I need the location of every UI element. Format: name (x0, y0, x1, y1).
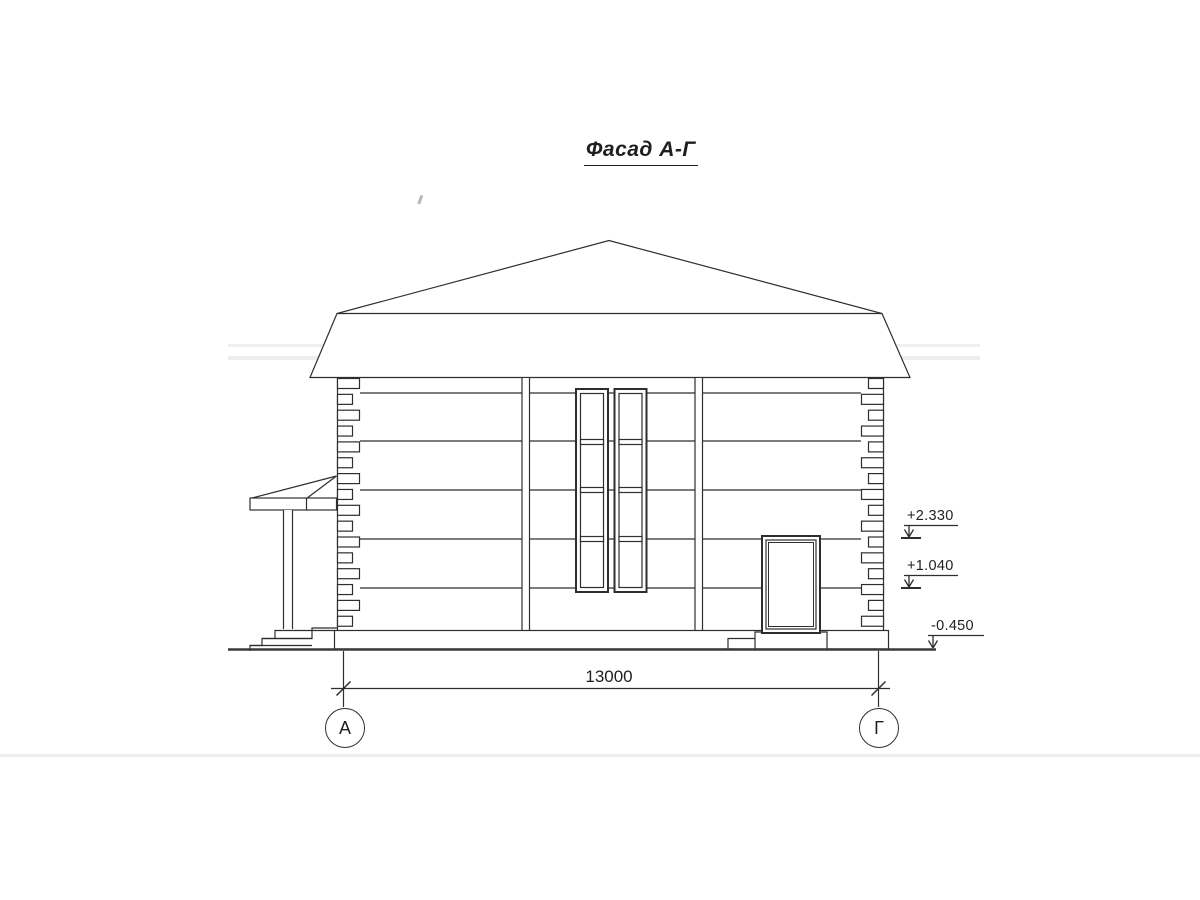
axis-bubble-g: Г (859, 708, 899, 748)
axis-label-a: А (339, 718, 351, 739)
wall-crossing-right (695, 378, 703, 630)
window-left (576, 389, 608, 592)
corner-log-ends-left (338, 379, 360, 627)
elevation-label-minus450: -0.450 (931, 618, 974, 634)
elevation-mark-1040 (901, 576, 958, 589)
drawing-title: Фасад А-Г (584, 138, 698, 166)
dimension-value: 13000 (583, 667, 635, 687)
elevation-mark-minus450 (928, 636, 984, 649)
elevation-label-2330: +2.330 (907, 508, 954, 524)
wall-crossing-left (522, 378, 530, 630)
elevation-linework (0, 0, 1200, 900)
door (762, 536, 820, 633)
corner-log-ends-right (862, 379, 884, 627)
porch-steps (250, 628, 337, 651)
roof (310, 241, 910, 378)
porch-canopy (250, 476, 337, 510)
elevation-label-1040: +1.040 (907, 558, 954, 574)
window-right (615, 389, 647, 592)
facade-drawing-sheet: Фасад А-Г 13000 +2.330 +1.040 -0.450 А Г (0, 0, 1200, 900)
elevation-mark-2330 (901, 526, 958, 539)
axis-bubble-a: А (325, 708, 365, 748)
axis-label-g: Г (874, 718, 884, 739)
porch-post (283, 510, 293, 629)
